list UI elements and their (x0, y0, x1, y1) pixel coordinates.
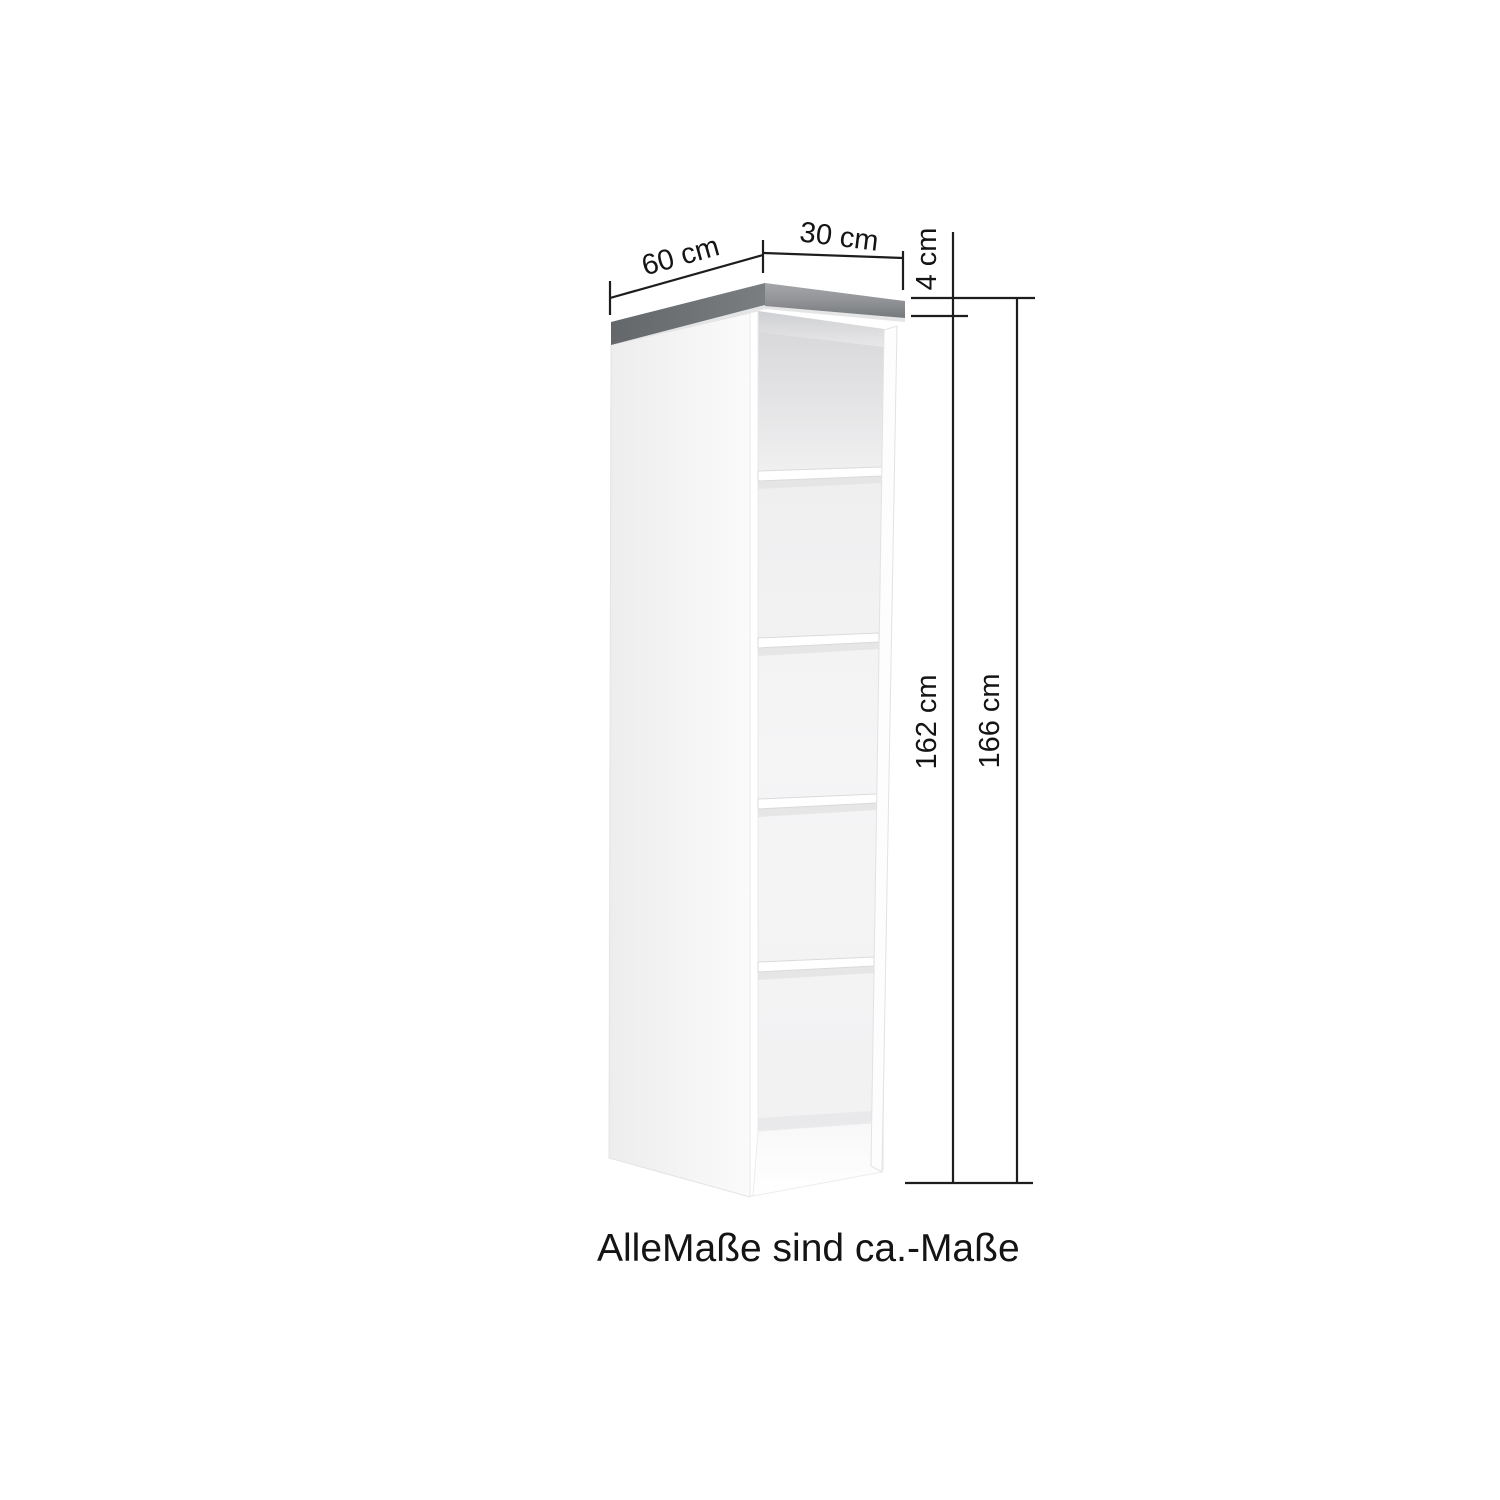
dimension-line (764, 253, 903, 258)
dim-total-height-label: 166 cm (974, 673, 1006, 768)
left-side-panel (609, 313, 750, 1197)
dimension-width: 30 cm (764, 216, 903, 290)
front-stile (750, 311, 758, 1197)
dim-carcass-height-label: 162 cm (911, 674, 943, 769)
diagram-canvas: 60 cm 30 cm 4 cm 162 cm 166 cm AlleMaße … (0, 0, 1500, 1500)
dimension-diagram: 60 cm 30 cm 4 cm 162 cm 166 cm AlleMaße … (0, 0, 1500, 1500)
dimension-total-height: 166 cm (974, 298, 1017, 1183)
measure-note: AlleMaße sind ca.-Maße (597, 1227, 1020, 1270)
top-compartment-shading (758, 332, 884, 471)
dim-thickness-label: 4 cm (911, 228, 943, 291)
base-front-band (753, 1123, 882, 1196)
dim-width-label: 30 cm (798, 216, 880, 257)
dim-depth-label: 60 cm (638, 230, 723, 282)
cabinet-illustration (609, 283, 905, 1197)
